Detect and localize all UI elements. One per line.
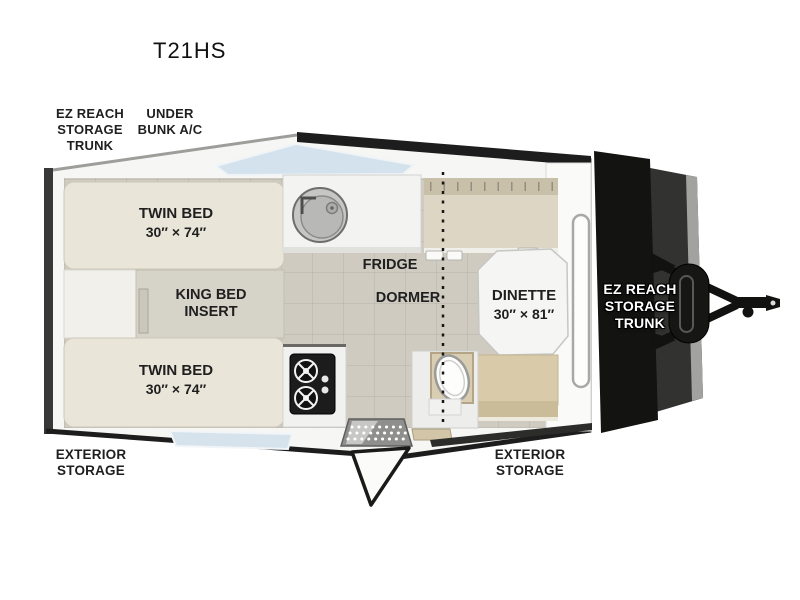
floorplan-canvas: T21HS EZ REACH STORAGE TRUNK UNDER BUNK … — [0, 0, 800, 600]
page-title: T21HS — [153, 38, 226, 64]
stove-knob-2 — [322, 387, 329, 394]
callout-exterior-storage-left: EXTERIOR STORAGE — [39, 447, 143, 479]
jack-wheel — [743, 307, 754, 318]
dinette-bench-base — [470, 417, 558, 421]
stove-knob-1 — [322, 376, 329, 383]
label-twin-bed-bottom: TWIN BED 30″ × 74″ — [104, 362, 248, 398]
sink-drain-dot — [330, 206, 334, 210]
toilet-step — [429, 399, 461, 415]
side-window — [170, 431, 292, 449]
hitch-coupler-pin — [771, 301, 776, 306]
dinette-bench — [470, 355, 558, 405]
label-fridge: FRIDGE — [330, 257, 450, 274]
sink-bowl — [301, 196, 343, 238]
hitch-tongue — [732, 297, 768, 308]
callout-under-bunk-ac: UNDER BUNK A/C — [122, 106, 218, 138]
label-king-bed-insert: KING BED INSERT — [149, 287, 273, 321]
entry-door-open — [352, 448, 409, 505]
callout-exterior-storage-center: EXTERIOR STORAGE — [478, 447, 582, 479]
stove-burner-2 — [295, 387, 317, 409]
dinette-bench-front — [470, 401, 558, 418]
label-dormer: DORMER — [348, 290, 468, 307]
label-dinette: DINETTE 30″ × 81″ — [459, 287, 589, 323]
label-twin-bed-top: TWIN BED 30″ × 74″ — [104, 205, 248, 241]
king-insert-panel — [64, 270, 136, 338]
king-insert-handle — [139, 289, 148, 333]
stove-cabinet-edge — [283, 344, 346, 347]
counter-shadow — [283, 247, 421, 253]
callout-front-trunk: EZ REACH STORAGE TRUNK — [582, 281, 698, 332]
stove-burner-1 — [295, 360, 317, 382]
